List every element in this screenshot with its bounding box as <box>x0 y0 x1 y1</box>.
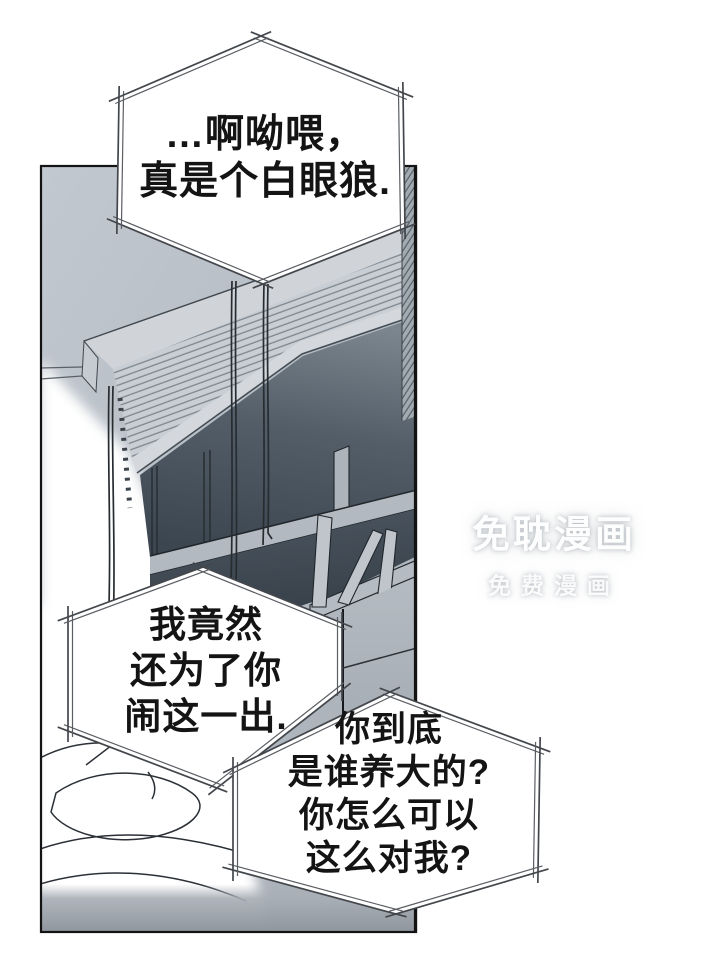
speech-bubble-top-text: …啊呦喂， 真是个白眼狼. <box>139 111 391 205</box>
speech-bubble-bottom-text: 你到底 是谁养大的? 你怎么可以 这么对我? <box>288 708 490 880</box>
speech-bubble-middle-text: 我竟然 还为了你 闹这一出. <box>124 602 287 740</box>
speech-line: 真是个白眼狼. <box>139 158 391 205</box>
speech-line: …啊呦喂， <box>139 111 391 158</box>
comic-page: …啊呦喂， 真是个白眼狼. 我竟然 还为了你 闹这一出. 你到底 是谁养大的? … <box>0 0 720 968</box>
speech-line: 这么对我? <box>288 837 490 880</box>
speech-line: 是谁养大的? <box>288 751 490 794</box>
speech-line: 闹这一出. <box>124 694 287 740</box>
speech-line: 我竟然 <box>124 602 287 648</box>
speech-line: 你怎么可以 <box>288 794 490 837</box>
speech-line: 你到底 <box>288 708 490 751</box>
speech-line: 还为了你 <box>124 648 287 694</box>
